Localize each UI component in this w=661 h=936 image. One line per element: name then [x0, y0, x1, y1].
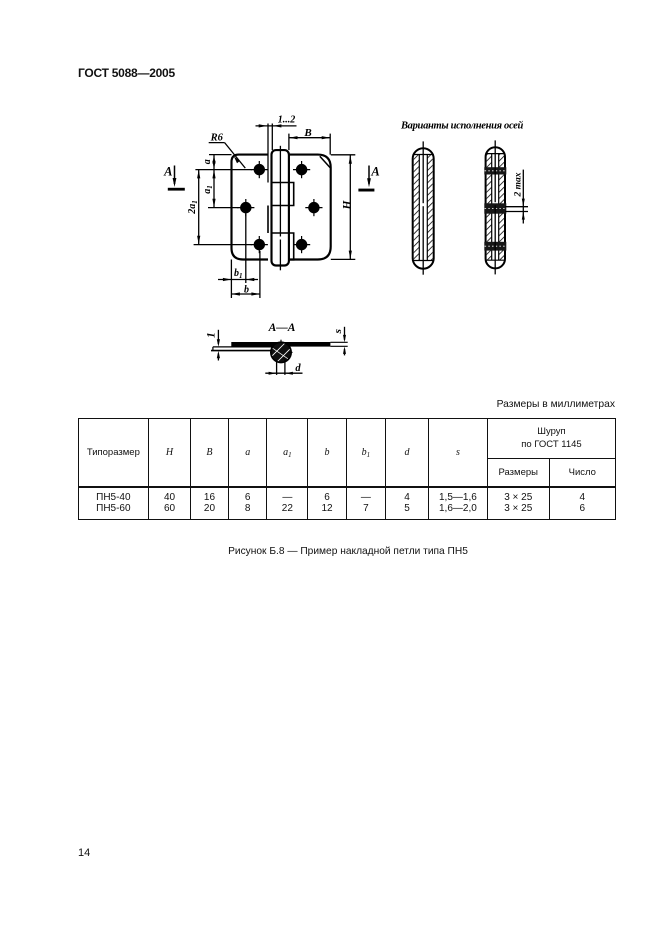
svg-text:Варианты исполнения осей: Варианты исполнения осей — [400, 121, 523, 132]
svg-text:1: 1 — [206, 332, 218, 338]
svg-text:d: d — [295, 363, 301, 374]
svg-text:A: A — [163, 165, 172, 179]
svg-text:b: b — [244, 285, 249, 296]
svg-text:H: H — [342, 199, 354, 210]
svg-text:A—A: A—A — [268, 322, 296, 334]
svg-text:2a1: 2a1 — [187, 200, 199, 215]
svg-text:s: s — [332, 329, 344, 334]
svg-text:2 max: 2 max — [514, 172, 524, 197]
svg-text:a1: a1 — [202, 185, 214, 194]
svg-text:A: A — [370, 165, 379, 179]
svg-text:R6: R6 — [210, 133, 224, 144]
svg-text:B: B — [303, 127, 311, 139]
svg-text:1...2: 1...2 — [278, 115, 296, 126]
svg-text:a: a — [202, 159, 213, 164]
svg-text:b1: b1 — [234, 268, 243, 280]
